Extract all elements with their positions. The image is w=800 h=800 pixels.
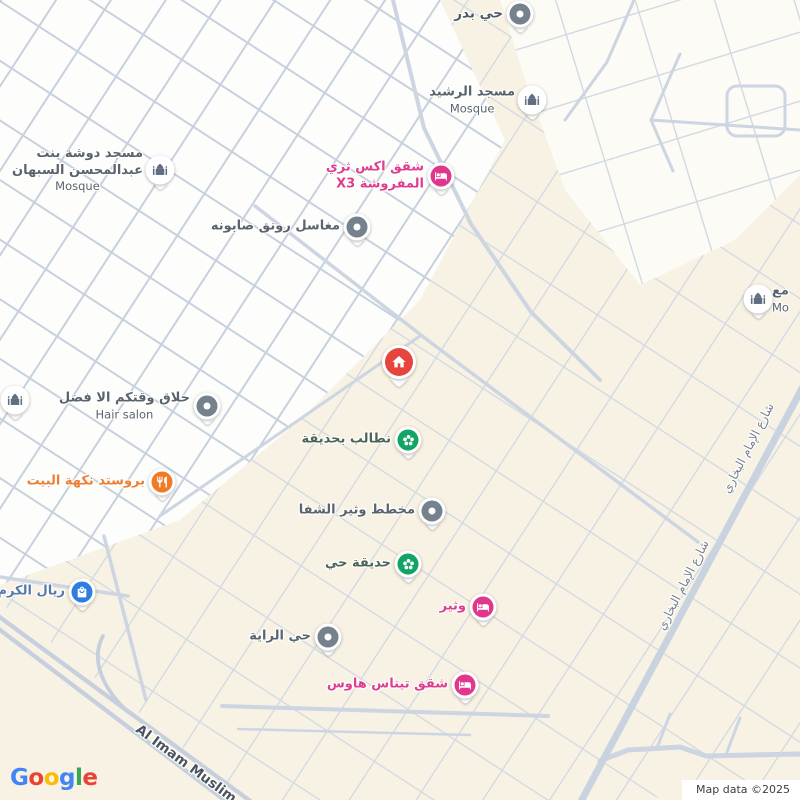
poi-label-tinas-house[interactable]: شقق تيناس هاوس (327, 677, 448, 694)
google-logo[interactable]: Google (10, 765, 97, 791)
google-logo-letter: o (44, 765, 59, 791)
park-pin[interactable] (395, 551, 422, 578)
mosque-pin[interactable] (1, 386, 30, 415)
map-viewport[interactable]: Al Imam Muslim شارع الإمام البخاري شارع … (0, 0, 800, 800)
poi-label-hadiqat-hay[interactable]: حديقة حي (325, 556, 391, 573)
poi-label-park-request[interactable]: نطالب بحديقة (302, 432, 391, 449)
bed-icon (459, 679, 472, 692)
mosque-icon (524, 92, 541, 109)
generic-pin[interactable] (315, 624, 342, 651)
poi-label-rial-alkaram[interactable]: ريال الكرم (0, 584, 65, 601)
flower-icon (401, 557, 415, 571)
mosque-pin[interactable] (146, 156, 175, 185)
mosque-icon (7, 392, 24, 409)
park-pin[interactable] (395, 427, 422, 454)
mosque-icon (750, 291, 767, 308)
poi-label-maghasil[interactable]: مغاسل رونق صابونه (211, 219, 340, 236)
google-logo-letter: G (10, 765, 28, 791)
poi-label-masjid-dosha[interactable]: مسجد دوشة بنت عبدالمحسن السبهان Mosque (12, 146, 143, 194)
mosque-pin[interactable] (518, 86, 547, 115)
shopping-pin[interactable] (69, 579, 96, 606)
flower-icon (401, 433, 415, 447)
google-logo-letter: o (28, 765, 43, 791)
google-logo-letter: g (59, 765, 75, 791)
poi-label-x3-apartments[interactable]: شقق اكس ثري المفروشة X3 (326, 159, 424, 192)
mosque-pin[interactable] (744, 285, 773, 314)
property-house-pin[interactable] (382, 345, 416, 379)
poi-label-hay-alraya[interactable]: حي الراية (249, 629, 311, 646)
poi-label-hay-badr[interactable]: حي بدر (454, 5, 503, 22)
lodging-pin[interactable] (428, 163, 455, 190)
poi-label-hair-salon[interactable]: حلاق وقتكم الا فضل Hair salon (59, 391, 190, 422)
bed-icon (477, 601, 490, 614)
poi-label-mukhatat-wathir[interactable]: مخطط وثير الشفا (299, 503, 415, 520)
poi-label-mosque-right-edge[interactable]: مع Mo (772, 284, 789, 315)
restaurant-pin[interactable] (149, 469, 176, 496)
map-attribution: Map data ©2025 (682, 780, 800, 800)
mosque-icon (152, 162, 169, 179)
generic-pin[interactable] (344, 214, 371, 241)
poi-label-broasted[interactable]: بروستد نكهة البيت (27, 474, 145, 491)
google-logo-letter: e (82, 765, 97, 791)
shopping-bag-icon (76, 586, 89, 599)
house-icon (391, 354, 407, 370)
lodging-pin[interactable] (452, 672, 479, 699)
restaurant-icon (156, 476, 169, 489)
bed-icon (435, 170, 448, 183)
poi-label-masjid-al-rashid[interactable]: مسجد الرشيد Mosque (429, 85, 515, 116)
generic-pin[interactable] (194, 393, 221, 420)
district-pin[interactable] (507, 1, 534, 28)
generic-pin[interactable] (419, 498, 446, 525)
poi-label-wathir[interactable]: وثير (440, 599, 466, 616)
lodging-pin[interactable] (470, 594, 497, 621)
